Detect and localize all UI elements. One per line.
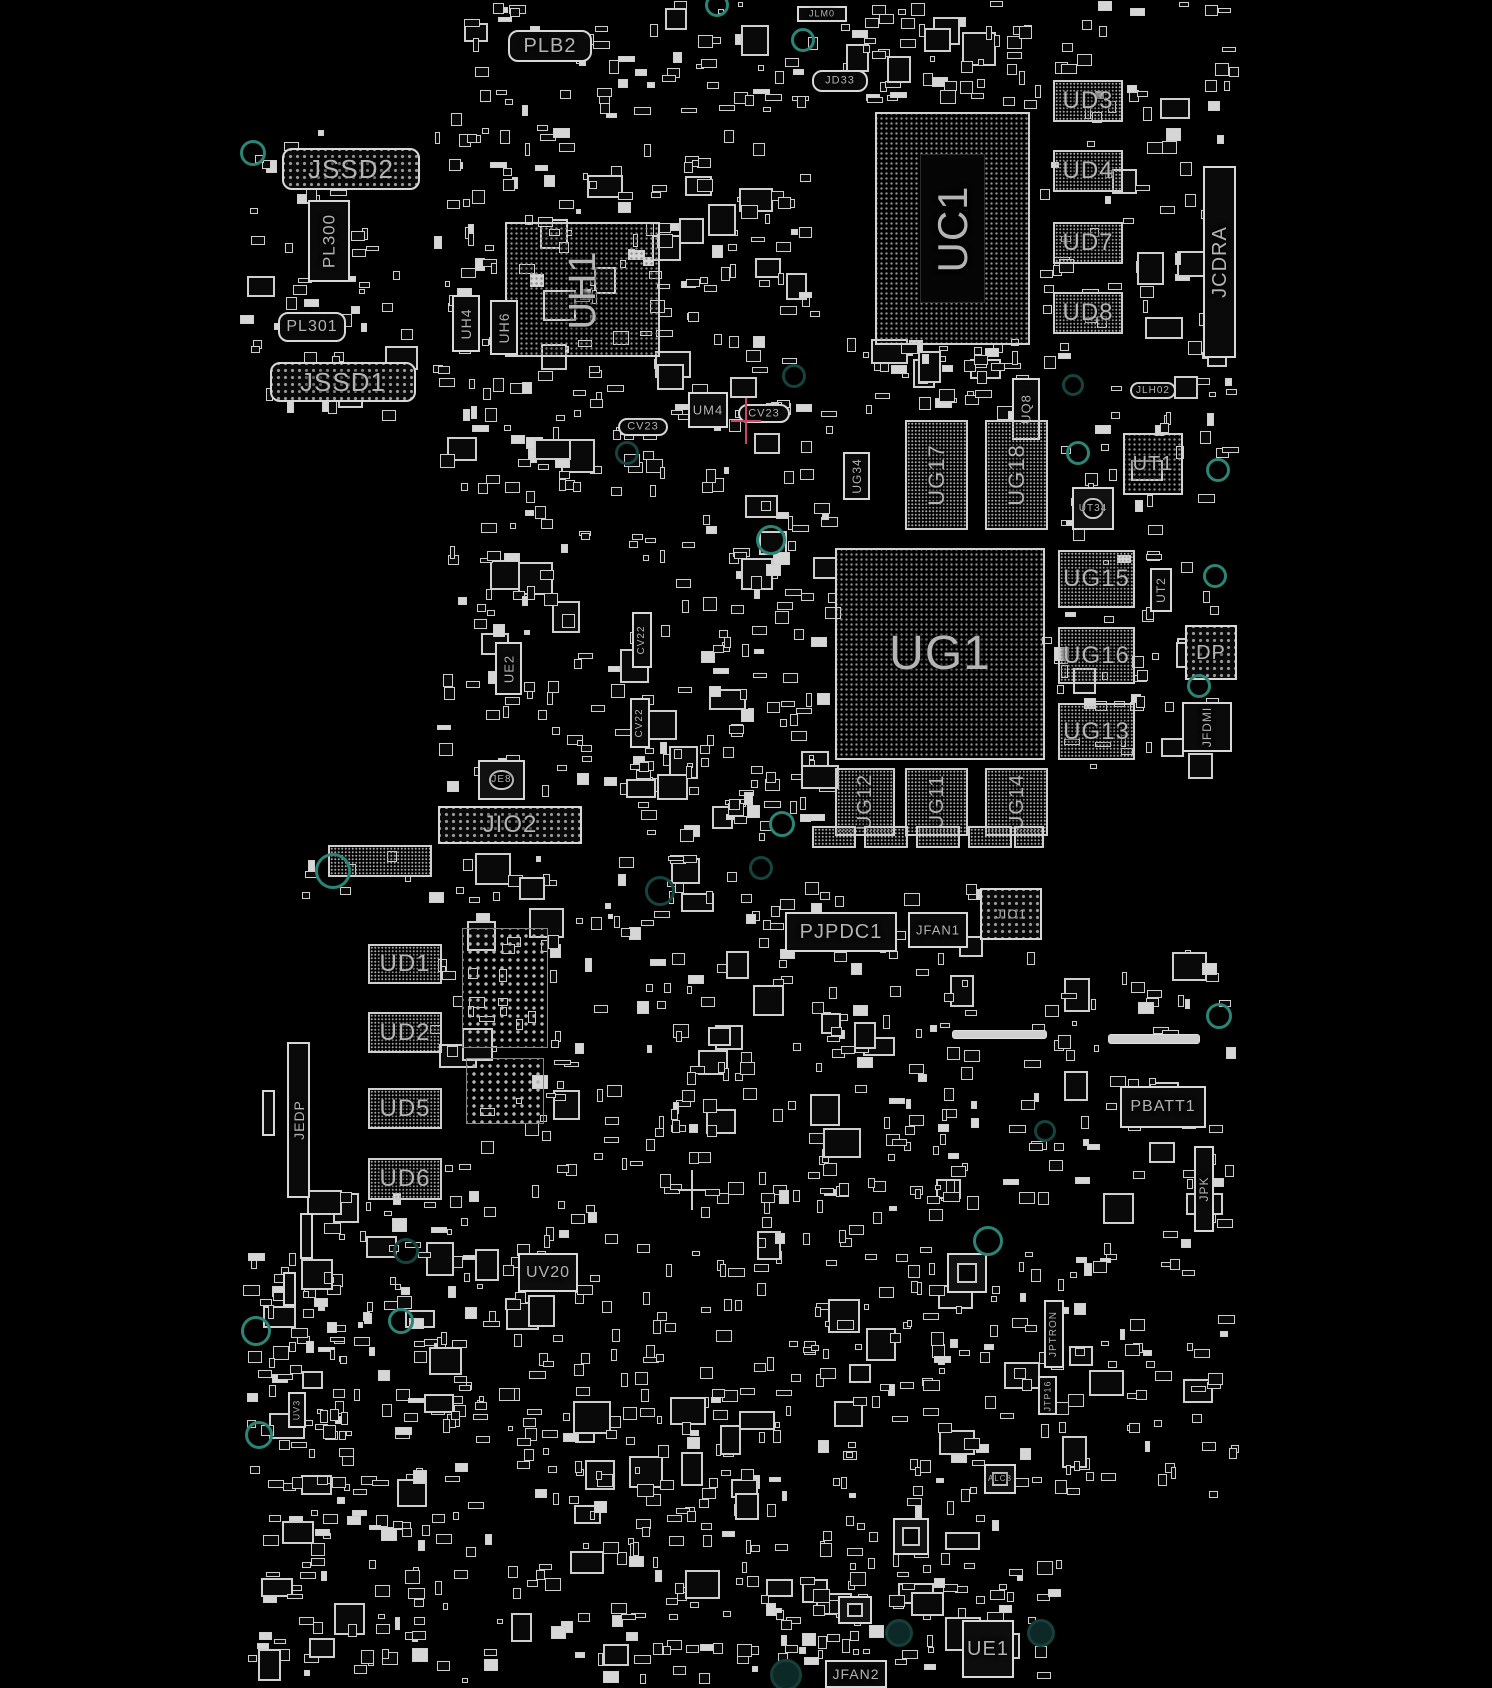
- smd-passive[interactable]: [737, 1644, 751, 1657]
- smd-passive[interactable]: [863, 352, 869, 358]
- smd-passive[interactable]: [621, 928, 631, 937]
- smd-passive[interactable]: [497, 1619, 503, 1624]
- smd-passive[interactable]: [731, 605, 744, 614]
- smd-passive[interactable]: [447, 781, 459, 792]
- smd-passive[interactable]: [924, 1664, 936, 1670]
- smd-passive[interactable]: [944, 993, 955, 1002]
- smd-passive[interactable]: [359, 289, 366, 294]
- smd-passive[interactable]: [947, 1047, 961, 1060]
- smd-passive[interactable]: [665, 1323, 676, 1333]
- smd-passive[interactable]: [644, 144, 651, 157]
- smd-passive[interactable]: [1065, 612, 1076, 617]
- smd-passive[interactable]: [454, 1570, 468, 1579]
- smd-passive[interactable]: [711, 1397, 721, 1402]
- smd-passive[interactable]: [778, 197, 791, 209]
- smd-passive[interactable]: [1003, 1179, 1020, 1185]
- smd-passive[interactable]: [724, 467, 729, 475]
- smd-passive[interactable]: [849, 1493, 855, 1498]
- smd-passive[interactable]: [1111, 386, 1122, 391]
- smd-passive[interactable]: [641, 810, 657, 820]
- smd-passive[interactable]: [1218, 8, 1232, 13]
- smd-passive[interactable]: [1135, 185, 1150, 192]
- smd-passive[interactable]: [547, 692, 553, 705]
- smd-passive[interactable]: [439, 378, 455, 387]
- smd-passive[interactable]: [1163, 1231, 1178, 1238]
- smd-passive[interactable]: [487, 610, 495, 616]
- smd-passive[interactable]: [1154, 1420, 1162, 1428]
- smd-passive[interactable]: [837, 1320, 854, 1331]
- smd-passive[interactable]: [688, 312, 699, 322]
- smd-passive[interactable]: [904, 893, 920, 905]
- smd-passive[interactable]: [935, 1185, 941, 1190]
- smd-passive[interactable]: [939, 1368, 945, 1374]
- smd-passive[interactable]: [735, 34, 741, 45]
- smd-passive[interactable]: [537, 125, 548, 132]
- smd-passive[interactable]: [1187, 1343, 1193, 1352]
- component-plb2[interactable]: PLB2: [508, 30, 592, 62]
- smd-passive[interactable]: [1068, 1394, 1084, 1408]
- smd-passive[interactable]: [826, 1260, 838, 1266]
- smd-passive[interactable]: [448, 1286, 456, 1298]
- smd-passive[interactable]: [660, 467, 665, 479]
- smd-passive[interactable]: [865, 1254, 877, 1260]
- smd-passive[interactable]: [823, 1531, 832, 1541]
- smd-passive[interactable]: [511, 1613, 531, 1642]
- smd-passive[interactable]: [324, 1272, 332, 1284]
- smd-passive[interactable]: [1202, 1442, 1216, 1452]
- smd-passive[interactable]: [340, 887, 351, 895]
- smd-passive[interactable]: [596, 1471, 601, 1481]
- smd-passive[interactable]: [818, 1636, 827, 1649]
- smd-passive[interactable]: [623, 1407, 637, 1420]
- smd-passive[interactable]: [369, 1347, 375, 1357]
- smd-passive[interactable]: [500, 130, 510, 144]
- smd-passive[interactable]: [1222, 447, 1239, 453]
- smd-passive[interactable]: [657, 774, 688, 799]
- smd-passive[interactable]: [1074, 1303, 1087, 1315]
- smd-passive[interactable]: [1040, 189, 1049, 200]
- smd-passive[interactable]: [961, 1067, 972, 1080]
- smd-passive[interactable]: [463, 199, 470, 207]
- smd-passive[interactable]: [688, 975, 703, 984]
- smd-passive[interactable]: [408, 1398, 423, 1403]
- smd-passive[interactable]: [548, 935, 559, 949]
- smd-passive[interactable]: [1032, 1477, 1042, 1484]
- smd-passive[interactable]: [434, 236, 442, 250]
- smd-passive[interactable]: [418, 1540, 425, 1551]
- smd-passive[interactable]: [879, 1287, 894, 1299]
- smd-passive[interactable]: [985, 1396, 996, 1410]
- smd-passive[interactable]: [1147, 990, 1163, 998]
- smd-passive[interactable]: [485, 1534, 491, 1546]
- smd-passive[interactable]: [923, 1380, 940, 1391]
- smd-passive[interactable]: [784, 471, 795, 484]
- smd-passive[interactable]: [1160, 98, 1190, 119]
- smd-passive[interactable]: [447, 200, 461, 209]
- smd-passive[interactable]: [525, 143, 530, 156]
- smd-passive[interactable]: [1061, 993, 1077, 999]
- smd-passive[interactable]: [974, 355, 988, 365]
- smd-passive[interactable]: [381, 1527, 396, 1541]
- smd-passive[interactable]: [674, 749, 682, 760]
- smd-passive[interactable]: [793, 69, 803, 75]
- smd-passive[interactable]: [754, 1264, 770, 1273]
- smd-passive[interactable]: [535, 1489, 547, 1497]
- smd-passive[interactable]: [700, 1367, 713, 1379]
- smd-passive[interactable]: [317, 1476, 327, 1485]
- smd-passive[interactable]: [841, 1046, 855, 1054]
- smd-passive[interactable]: [437, 1661, 450, 1671]
- smd-passive[interactable]: [557, 1081, 564, 1089]
- smd-passive[interactable]: [588, 1212, 596, 1223]
- component-ut34[interactable]: UT34: [1072, 487, 1114, 530]
- smd-passive[interactable]: [990, 1590, 1006, 1601]
- component-ug34[interactable]: UG34: [843, 452, 870, 500]
- smd-passive[interactable]: [597, 1089, 603, 1102]
- smd-passive[interactable]: [1147, 142, 1163, 154]
- smd-passive[interactable]: [445, 1165, 453, 1173]
- smd-passive[interactable]: [655, 1570, 662, 1582]
- smd-passive[interactable]: [1021, 1100, 1035, 1111]
- smd-passive[interactable]: [485, 245, 494, 251]
- smd-passive[interactable]: [602, 1301, 612, 1314]
- smd-passive[interactable]: [1037, 1672, 1051, 1679]
- smd-passive[interactable]: [789, 1341, 798, 1347]
- component-alc8[interactable]: ALC8: [984, 1464, 1016, 1494]
- smd-passive[interactable]: [796, 404, 812, 412]
- smd-passive[interactable]: [839, 1183, 849, 1196]
- smd-passive[interactable]: [590, 399, 603, 408]
- smd-passive[interactable]: [766, 1579, 793, 1597]
- smd-passive[interactable]: [1087, 141, 1095, 147]
- smd-passive[interactable]: [849, 1364, 871, 1383]
- smd-passive[interactable]: [269, 1515, 280, 1523]
- component-uh6[interactable]: UH6: [490, 300, 518, 355]
- smd-passive[interactable]: [626, 779, 656, 797]
- smd-passive[interactable]: [311, 1543, 325, 1556]
- smd-passive[interactable]: [247, 1393, 257, 1402]
- smd-passive[interactable]: [938, 953, 944, 965]
- smd-passive[interactable]: [542, 1430, 558, 1438]
- smd-passive[interactable]: [1145, 317, 1183, 339]
- smd-passive[interactable]: [1054, 1143, 1064, 1152]
- bar-component[interactable]: [952, 1030, 1047, 1039]
- smd-passive[interactable]: [611, 1349, 617, 1361]
- smd-passive[interactable]: [931, 1332, 944, 1346]
- smd-passive[interactable]: [447, 1046, 458, 1057]
- smd-passive[interactable]: [889, 1595, 905, 1606]
- smd-passive[interactable]: [672, 953, 685, 964]
- smd-passive[interactable]: [472, 425, 488, 432]
- smd-passive[interactable]: [563, 1433, 579, 1442]
- smd-passive[interactable]: [730, 264, 735, 277]
- smd-passive[interactable]: [498, 17, 512, 22]
- smd-passive[interactable]: [720, 1425, 741, 1455]
- smd-passive[interactable]: [632, 534, 643, 540]
- smd-passive[interactable]: [913, 1486, 923, 1495]
- smd-passive[interactable]: [968, 894, 977, 900]
- smd-passive[interactable]: [517, 1461, 530, 1470]
- smd-passive[interactable]: [775, 611, 789, 624]
- smd-passive[interactable]: [1025, 1252, 1034, 1257]
- smd-passive[interactable]: [720, 1264, 726, 1277]
- smd-passive[interactable]: [595, 26, 608, 32]
- smd-passive[interactable]: [721, 267, 730, 280]
- smd-passive[interactable]: [413, 1470, 427, 1484]
- smd-passive[interactable]: [1180, 162, 1192, 176]
- smd-passive[interactable]: [309, 1449, 316, 1458]
- smd-passive[interactable]: [1044, 356, 1056, 369]
- smd-passive[interactable]: [614, 916, 619, 928]
- smd-passive[interactable]: [938, 1124, 950, 1131]
- smd-passive[interactable]: [1205, 5, 1219, 15]
- smd-passive[interactable]: [1009, 1125, 1026, 1134]
- smd-passive[interactable]: [1091, 999, 1096, 1010]
- smd-passive[interactable]: [915, 1467, 920, 1477]
- smd-passive[interactable]: [606, 1430, 617, 1439]
- smd-passive[interactable]: [478, 483, 488, 494]
- smd-passive[interactable]: [800, 469, 814, 480]
- smd-passive[interactable]: [964, 1438, 980, 1451]
- smd-passive[interactable]: [483, 388, 490, 400]
- smd-passive[interactable]: [808, 1172, 819, 1179]
- smd-passive[interactable]: [1090, 764, 1097, 770]
- smd-passive[interactable]: [598, 1653, 603, 1666]
- smd-passive[interactable]: [511, 435, 525, 444]
- smd-passive[interactable]: [605, 903, 611, 910]
- smd-passive[interactable]: [1175, 253, 1181, 264]
- smd-passive[interactable]: [1179, 2, 1189, 8]
- smd-passive[interactable]: [519, 877, 545, 900]
- smd-passive[interactable]: [857, 1057, 873, 1069]
- smd-passive[interactable]: [783, 673, 798, 683]
- smd-passive[interactable]: [303, 1309, 314, 1318]
- smd-passive[interactable]: [1034, 1093, 1039, 1102]
- smd-passive[interactable]: [513, 1588, 521, 1599]
- smd-passive[interactable]: [393, 271, 400, 279]
- smd-passive[interactable]: [469, 897, 481, 903]
- smd-passive[interactable]: [1108, 283, 1122, 290]
- smd-passive[interactable]: [927, 1196, 940, 1204]
- smd-passive[interactable]: [582, 756, 592, 762]
- smd-passive[interactable]: [791, 1374, 802, 1382]
- smd-passive[interactable]: [700, 277, 707, 284]
- smd-passive[interactable]: [559, 143, 575, 152]
- smd-passive[interactable]: [354, 1337, 371, 1346]
- smd-passive[interactable]: [769, 1477, 781, 1482]
- smd-passive[interactable]: [328, 401, 337, 415]
- smd-passive[interactable]: [940, 90, 956, 104]
- smd-passive[interactable]: [984, 1344, 994, 1350]
- smd-passive[interactable]: [704, 285, 717, 292]
- smd-passive[interactable]: [650, 24, 658, 38]
- smd-passive[interactable]: [971, 1118, 979, 1128]
- smd-passive[interactable]: [361, 323, 367, 332]
- smd-passive[interactable]: [450, 1196, 463, 1208]
- smd-passive[interactable]: [489, 1311, 496, 1322]
- smd-passive[interactable]: [557, 1165, 569, 1173]
- smd-passive[interactable]: [443, 1419, 450, 1433]
- smd-passive[interactable]: [976, 1515, 985, 1522]
- smd-passive[interactable]: [868, 1178, 875, 1189]
- smd-passive[interactable]: [892, 1416, 909, 1422]
- smd-passive[interactable]: [775, 71, 784, 85]
- smd-passive[interactable]: [528, 1295, 555, 1327]
- smd-passive[interactable]: [302, 1371, 323, 1389]
- smd-passive[interactable]: [1138, 1002, 1155, 1014]
- smd-passive[interactable]: [611, 1603, 627, 1614]
- smd-passive[interactable]: [956, 1306, 961, 1315]
- smd-passive[interactable]: [781, 1635, 787, 1646]
- smd-passive[interactable]: [510, 523, 516, 529]
- smd-passive[interactable]: [1019, 71, 1025, 85]
- smd-passive[interactable]: [453, 1512, 459, 1520]
- smd-passive[interactable]: [634, 1655, 650, 1665]
- smd-passive[interactable]: [1106, 1103, 1117, 1110]
- smd-passive[interactable]: [257, 1643, 269, 1649]
- smd-passive[interactable]: [653, 1320, 660, 1334]
- smd-passive[interactable]: [890, 986, 902, 997]
- smd-passive[interactable]: [490, 560, 519, 591]
- smd-passive[interactable]: [785, 58, 799, 67]
- smd-passive[interactable]: [266, 1572, 280, 1578]
- smd-passive[interactable]: [438, 366, 450, 374]
- smd-passive[interactable]: [621, 1614, 636, 1620]
- smd-passive[interactable]: [718, 1062, 725, 1073]
- smd-passive[interactable]: [1081, 1116, 1089, 1129]
- smd-passive[interactable]: [363, 1312, 370, 1321]
- smd-passive[interactable]: [536, 1570, 545, 1581]
- smd-passive[interactable]: [395, 1427, 412, 1435]
- smd-passive[interactable]: [576, 918, 583, 924]
- smd-passive[interactable]: [689, 787, 699, 795]
- smd-passive[interactable]: [911, 1592, 943, 1616]
- smd-passive[interactable]: [1229, 1448, 1237, 1459]
- smd-passive[interactable]: [742, 644, 749, 657]
- smd-passive[interactable]: [686, 1645, 699, 1653]
- smd-passive[interactable]: [1133, 1171, 1145, 1179]
- smd-passive[interactable]: [307, 1190, 342, 1215]
- smd-passive[interactable]: [635, 1467, 640, 1474]
- smd-passive[interactable]: [961, 61, 973, 73]
- smd-passive[interactable]: [999, 1584, 1007, 1591]
- smd-passive[interactable]: [635, 69, 647, 76]
- smd-passive[interactable]: [857, 1523, 865, 1530]
- smd-passive[interactable]: [687, 1511, 697, 1522]
- smd-passive[interactable]: [573, 482, 581, 492]
- component-pjpdc1[interactable]: PJPDC1: [785, 912, 897, 952]
- smd-passive[interactable]: [1022, 1379, 1032, 1392]
- smd-passive[interactable]: [741, 709, 754, 722]
- smd-passive[interactable]: [975, 390, 992, 398]
- smd-passive[interactable]: [916, 969, 929, 976]
- pingrid-component[interactable]: [466, 1058, 544, 1124]
- smd-passive[interactable]: [767, 702, 780, 713]
- smd-passive[interactable]: [1077, 54, 1092, 65]
- smd-passive[interactable]: [964, 1050, 980, 1062]
- smd-passive[interactable]: [450, 546, 455, 559]
- smd-passive[interactable]: [1095, 425, 1112, 434]
- smd-passive[interactable]: [274, 1639, 285, 1644]
- smd-passive[interactable]: [1007, 52, 1022, 58]
- smd-passive[interactable]: [820, 1543, 833, 1556]
- smd-passive[interactable]: [618, 202, 631, 213]
- smd-passive[interactable]: [626, 1437, 634, 1445]
- smd-passive[interactable]: [853, 1649, 860, 1655]
- smd-passive[interactable]: [340, 1192, 352, 1202]
- smd-passive[interactable]: [706, 469, 717, 483]
- smd-passive[interactable]: [250, 208, 258, 214]
- smd-passive[interactable]: [330, 1349, 335, 1360]
- smd-passive[interactable]: [682, 1422, 691, 1435]
- smd-passive[interactable]: [655, 1128, 665, 1137]
- smd-passive[interactable]: [685, 1570, 720, 1598]
- smd-passive[interactable]: [901, 344, 918, 354]
- smd-passive[interactable]: [792, 525, 808, 533]
- smd-passive[interactable]: [504, 425, 511, 431]
- smd-passive[interactable]: [1202, 963, 1217, 975]
- smd-passive[interactable]: [578, 1613, 589, 1622]
- smd-passive[interactable]: [459, 1164, 471, 1170]
- smd-passive[interactable]: [841, 24, 850, 31]
- smd-passive[interactable]: [1019, 1262, 1024, 1271]
- smd-passive[interactable]: [875, 393, 891, 399]
- smd-passive[interactable]: [526, 491, 535, 503]
- smd-passive[interactable]: [548, 1466, 557, 1473]
- smd-passive[interactable]: [687, 986, 692, 994]
- smd-passive[interactable]: [1207, 413, 1213, 426]
- smd-passive[interactable]: [437, 725, 451, 731]
- smd-passive[interactable]: [825, 1321, 831, 1328]
- smd-passive[interactable]: [959, 17, 966, 27]
- smd-passive[interactable]: [594, 1005, 608, 1013]
- smd-passive[interactable]: [751, 766, 764, 773]
- smd-passive[interactable]: [781, 701, 795, 707]
- smd-passive[interactable]: [451, 1411, 460, 1420]
- smd-passive[interactable]: [816, 1063, 822, 1072]
- smd-passive[interactable]: [576, 1387, 590, 1396]
- component-ut1[interactable]: UT1: [1123, 433, 1183, 495]
- smd-passive[interactable]: [697, 179, 712, 192]
- smd-passive[interactable]: [510, 383, 523, 394]
- smd-passive[interactable]: [854, 1022, 875, 1050]
- smd-passive[interactable]: [608, 914, 613, 919]
- smd-passive[interactable]: [575, 1043, 584, 1054]
- smd-passive[interactable]: [642, 1527, 651, 1537]
- smd-passive[interactable]: [550, 970, 557, 983]
- smd-passive[interactable]: [251, 346, 261, 353]
- smd-passive[interactable]: [635, 1372, 648, 1385]
- smd-passive[interactable]: [741, 894, 752, 903]
- smd-passive[interactable]: [1188, 341, 1202, 355]
- smd-passive[interactable]: [449, 159, 461, 171]
- smd-passive[interactable]: [773, 1430, 781, 1444]
- smd-passive[interactable]: [657, 1312, 668, 1321]
- smd-passive[interactable]: [476, 1436, 490, 1443]
- smd-passive[interactable]: [589, 181, 596, 189]
- smd-passive[interactable]: [525, 1123, 539, 1136]
- smd-passive[interactable]: [1166, 128, 1181, 141]
- smd-passive[interactable]: [659, 1116, 664, 1128]
- smd-passive[interactable]: [469, 379, 476, 389]
- smd-passive[interactable]: [929, 1263, 935, 1275]
- smd-passive[interactable]: [1194, 1349, 1210, 1358]
- smd-passive[interactable]: [959, 1350, 970, 1356]
- smd-passive[interactable]: [662, 75, 676, 82]
- smd-passive[interactable]: [801, 441, 812, 453]
- smd-passive[interactable]: [630, 1161, 643, 1166]
- smd-passive[interactable]: [1074, 1461, 1080, 1471]
